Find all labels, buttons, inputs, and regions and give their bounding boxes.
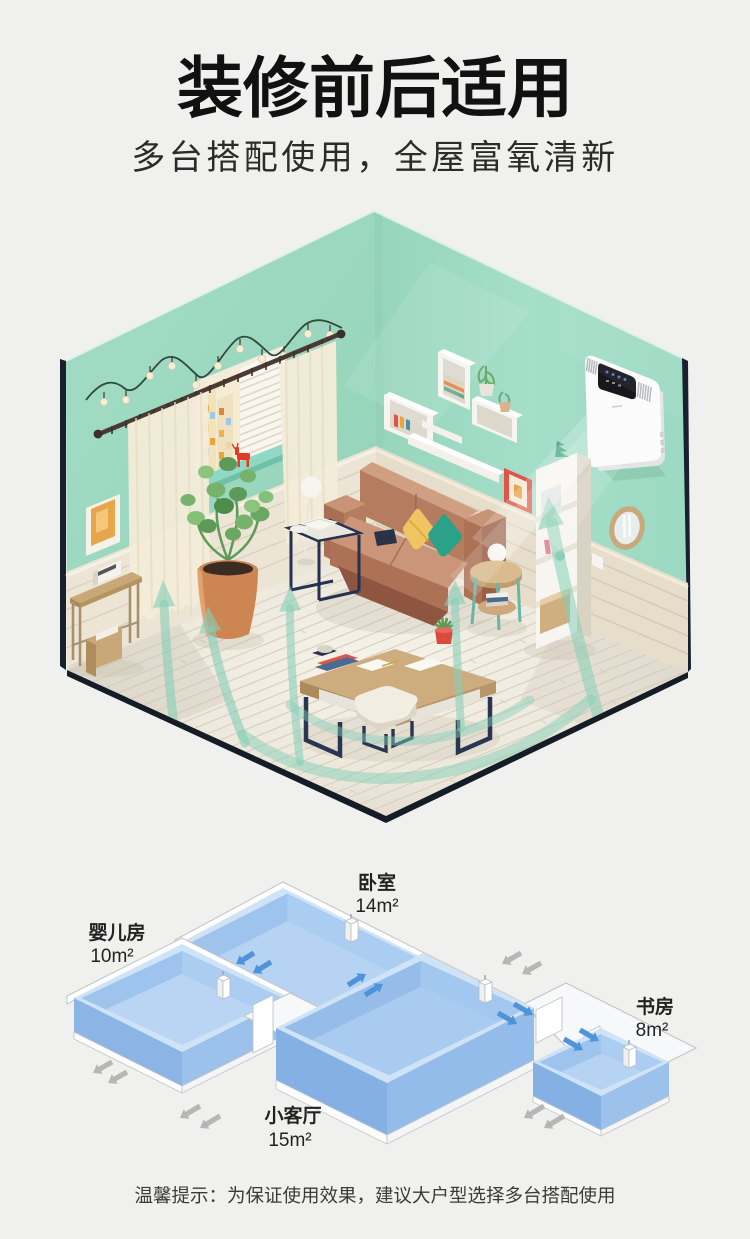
svg-text:卧室: 卧室 — [358, 871, 396, 894]
svg-text:温馨提示：为保证使用效果，建议大户型选择多台搭配使用: 温馨提示：为保证使用效果，建议大户型选择多台搭配使用 — [134, 1185, 615, 1206]
svg-text:8m²: 8m² — [636, 1020, 669, 1041]
svg-text:婴儿房: 婴儿房 — [88, 921, 145, 944]
svg-text:装修前后适用: 装修前后适用 — [177, 51, 573, 125]
svg-text:书房: 书房 — [636, 995, 674, 1018]
svg-text:多台搭配使用，全屋富氧清新: 多台搭配使用，全屋富氧清新 — [131, 139, 619, 177]
svg-text:15m²: 15m² — [268, 1130, 311, 1151]
svg-text:小客厅: 小客厅 — [264, 1104, 321, 1127]
svg-text:14m²: 14m² — [355, 896, 398, 917]
svg-text:10m²: 10m² — [90, 946, 133, 967]
